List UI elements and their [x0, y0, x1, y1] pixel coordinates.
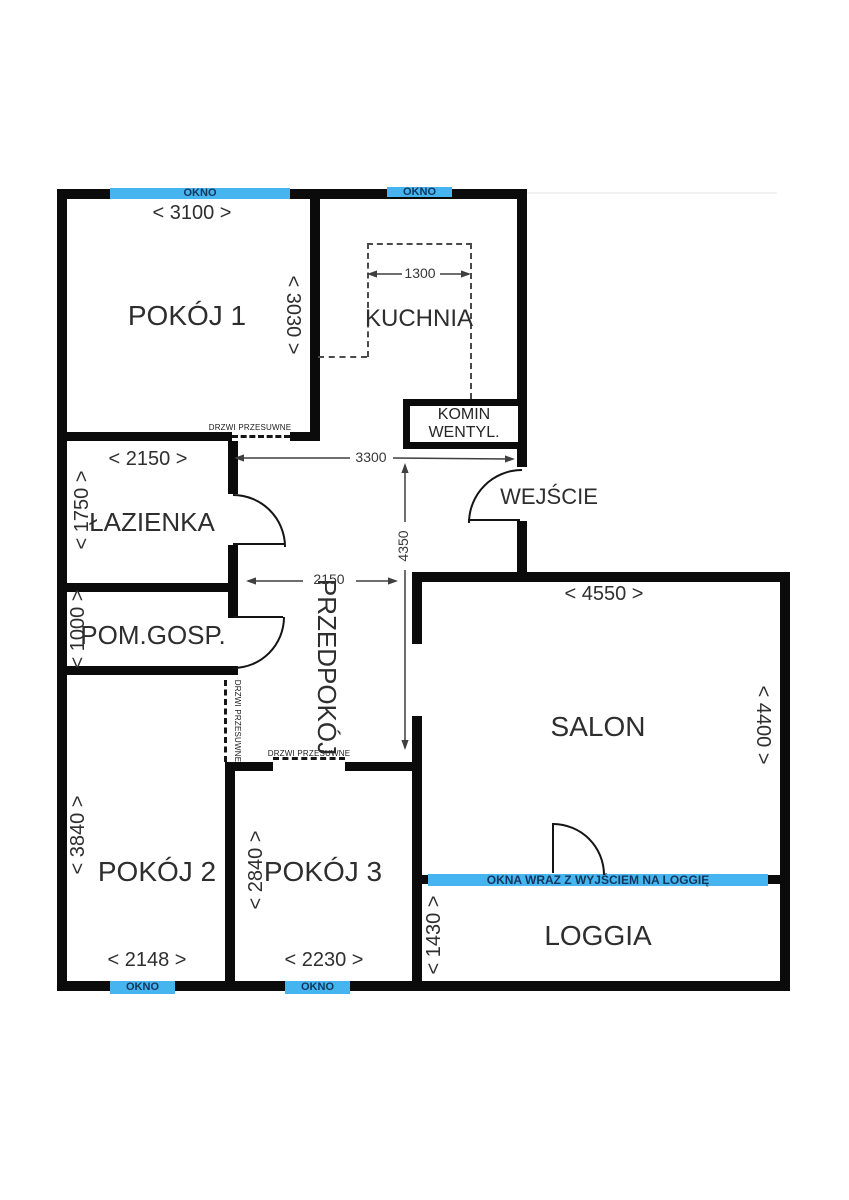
dim-salon-depth: < 4400 > — [753, 686, 773, 765]
wall-lazienka-right-a — [228, 441, 238, 494]
wall-pomgosp-right-stub — [228, 592, 238, 618]
sliding-door-label-pokoj3: DRZWI PRZESUWNE — [268, 750, 351, 758]
loggia-window-label: OKNA WRAZ Z WYJŚCIEM NA LOGGIĘ — [487, 874, 709, 886]
dim-pomgosp-depth: < 1000 > — [68, 590, 88, 669]
vent-chimney-box: KOMIN WENTYL. — [403, 399, 525, 449]
wall-pokoj1-right — [310, 189, 320, 441]
room-label-pokoj1: POKÓJ 1 — [128, 302, 246, 330]
room-label-pokoj2: POKÓJ 2 — [98, 858, 216, 886]
sliding-door-pokoj1 — [232, 435, 290, 438]
window-kuchnia: OKNO — [387, 187, 452, 197]
door-arc-loggia — [553, 823, 605, 875]
dim-pokoj3-depth: < 2840 > — [246, 831, 266, 910]
wall-przedpokoj-salon-a — [412, 572, 422, 644]
wall-pokoj2-right — [225, 762, 235, 991]
window-label: OKNO — [126, 982, 159, 993]
window-pokoj3: OKNO — [285, 981, 350, 994]
window-pokoj2: OKNO — [110, 981, 175, 994]
window-label: OKNO — [184, 188, 217, 199]
door-leaf-lazienka — [233, 543, 284, 545]
dim-kuchnia-width: 1300 — [404, 266, 435, 280]
kitchen-dashed-top — [367, 243, 472, 245]
dim-korytarz-length: 3300 — [355, 450, 386, 464]
wall-loggia-stub-right — [768, 875, 780, 884]
room-label-wejscie: WEJŚCIE — [500, 486, 598, 508]
dim-pokoj2-depth: < 3840 > — [68, 796, 88, 875]
dim-pokoj1-width: < 3100 > — [153, 203, 232, 223]
kitchen-dashed-left — [367, 243, 369, 357]
kitchen-dashed-bottom — [318, 356, 367, 358]
wall-salon-top — [412, 572, 790, 582]
dim-pokoj3-width: < 2230 > — [285, 950, 364, 970]
door-leaf-loggia — [552, 823, 554, 873]
door-leaf-wejscie — [468, 519, 520, 521]
dim-lazienka-width: < 2150 > — [109, 449, 188, 469]
vent-chimney-label-line2: WENTYL. — [428, 424, 499, 442]
floor-plan: KOMIN WENTYL. OKNO OKNO OKNO OKNO OKNA W… — [0, 0, 849, 1200]
room-label-kuchnia: KUCHNIA — [365, 307, 473, 331]
faint-guide-line — [527, 192, 777, 194]
dim-salon-width: < 4550 > — [565, 584, 644, 604]
wall-pokoj1-bottom-a — [57, 432, 232, 441]
vent-chimney-label-line1: KOMIN — [438, 406, 490, 424]
room-label-lazienka: ŁAZIENKA — [89, 509, 215, 535]
wall-przedpokoj-salon-b — [412, 716, 422, 991]
sliding-door-label-pokoj1: DRZWI PRZESUWNE — [209, 424, 292, 432]
dim-przedpokoj-width: 2150 — [313, 572, 344, 586]
sliding-door-pokoj2 — [224, 680, 227, 762]
window-pokoj1: OKNO — [110, 188, 290, 199]
wall-pokoj3-top-a — [225, 762, 273, 771]
room-label-pomgosp: POM.GOSP. — [80, 622, 225, 648]
room-label-pokoj3: POKÓJ 3 — [264, 858, 382, 886]
room-label-salon: SALON — [551, 713, 646, 741]
dim-przedpokoj-length: 4350 — [396, 530, 410, 561]
door-leaf-pomgosp — [233, 616, 283, 618]
wall-right-below-entry — [517, 521, 527, 576]
window-loggia-exit: OKNA WRAZ Z WYJŚCIEM NA LOGGIĘ — [428, 874, 768, 886]
wall-pokoj1-bottom-b — [290, 432, 320, 441]
dim-pokoj1-depth: < 3030 > — [283, 276, 303, 355]
window-label: OKNO — [403, 187, 436, 198]
dimension-lines — [0, 0, 849, 1200]
dim-loggia-depth: < 1430 > — [424, 896, 444, 975]
sliding-door-label-pokoj2: DRZWI PRZESUWNE — [233, 680, 241, 763]
dim-pokoj2-width: < 2148 > — [108, 950, 187, 970]
wall-salon-right — [780, 572, 790, 991]
dim-lazienka-depth: < 1750 > — [72, 471, 92, 550]
door-arc-pomgosp — [233, 617, 285, 669]
room-label-przedpokoj: PRZEDPOKÓJ — [314, 579, 340, 755]
room-label-loggia: LOGGIA — [544, 922, 651, 950]
window-label: OKNO — [301, 982, 334, 993]
door-arc-lazienka — [233, 494, 286, 547]
wall-pokoj3-top-b — [345, 762, 422, 771]
